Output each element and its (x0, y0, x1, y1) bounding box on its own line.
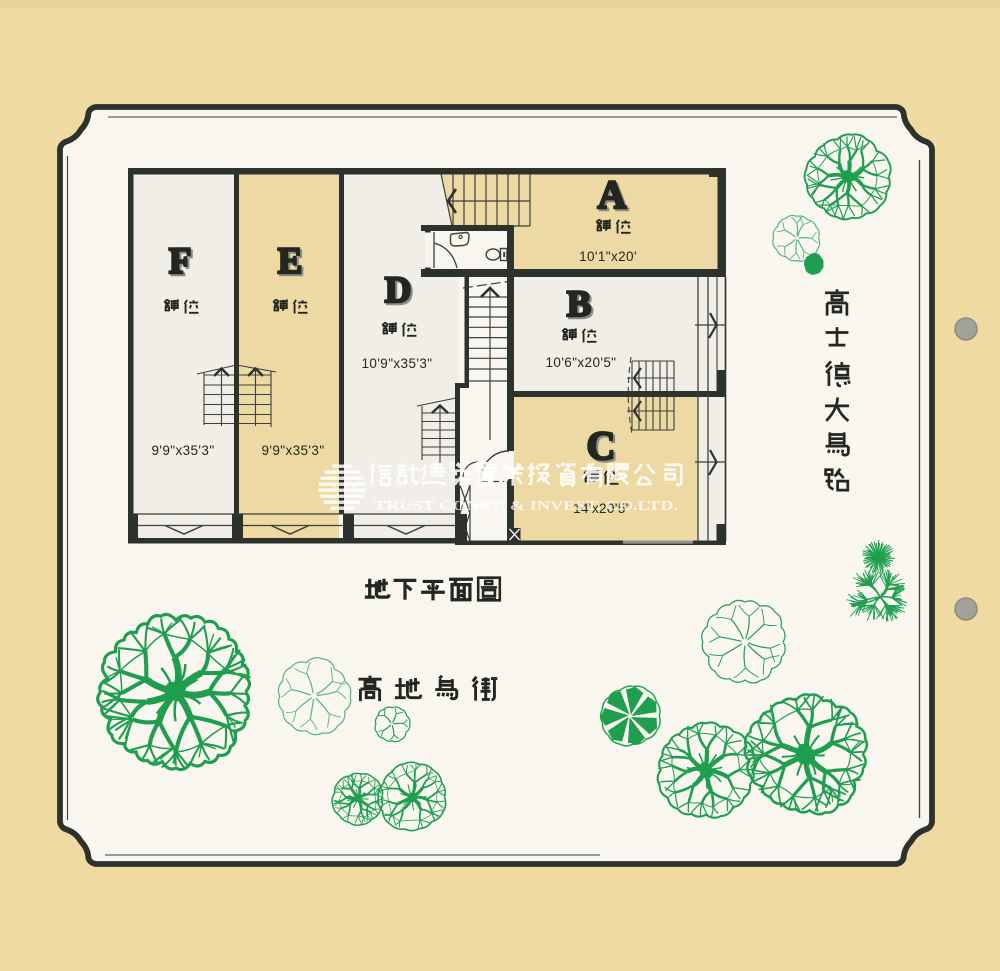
svg-text:9'9"x35'3": 9'9"x35'3" (151, 443, 214, 458)
svg-text:9'9"x35'3": 9'9"x35'3" (261, 443, 324, 458)
svg-text:10'9"x35'3": 10'9"x35'3" (362, 356, 433, 371)
svg-text:F: F (169, 241, 192, 282)
svg-text:C: C (587, 423, 616, 468)
svg-text:A: A (598, 172, 627, 217)
svg-text:A.T.I: A.T.I (328, 480, 355, 495)
svg-text:10'1"x20': 10'1"x20' (579, 249, 637, 264)
svg-text:TRUST CONST. & INVEST. CO.LTD.: TRUST CONST. & INVEST. CO.LTD. (374, 499, 678, 514)
svg-text:10'6"x20'5": 10'6"x20'5" (546, 355, 617, 370)
svg-text:B: B (567, 284, 592, 325)
svg-text:D: D (385, 270, 412, 311)
svg-text:E: E (278, 241, 303, 282)
